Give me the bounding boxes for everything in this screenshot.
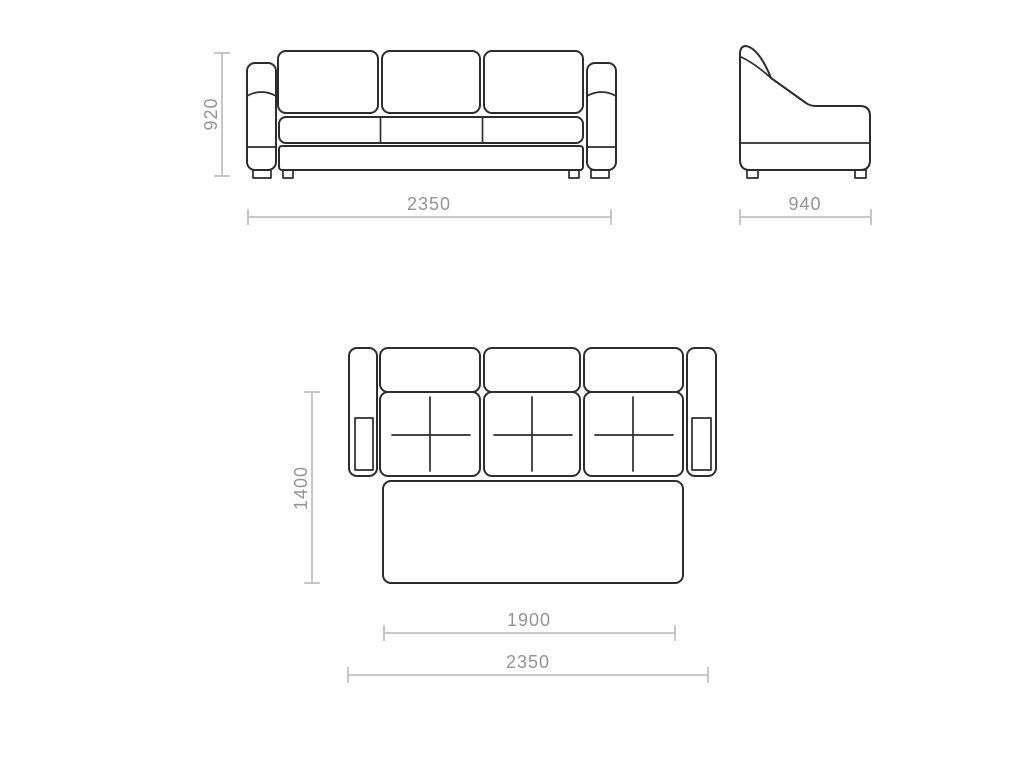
plan-depth-dimension: 1400	[291, 392, 320, 583]
front-base	[279, 146, 583, 170]
armrest-seam-arc	[247, 92, 276, 96]
plan-total-width-dimension: 2350	[348, 652, 708, 683]
plan-total-width-label: 2350	[506, 652, 550, 672]
front-foot-right	[569, 170, 579, 178]
front-seat-band	[279, 117, 583, 143]
plan-seat-cushion-1	[380, 392, 480, 476]
front-foot-left	[283, 170, 293, 178]
front-width-label: 2350	[407, 194, 451, 214]
armrest-body	[587, 63, 616, 170]
side-foot-left	[747, 170, 758, 178]
plan-back-cushion-1	[380, 348, 480, 392]
side-depth-dimension: 940	[740, 194, 871, 225]
plan-view: 1400	[291, 348, 716, 683]
side-foot-right	[855, 170, 866, 178]
plan-armrest-right	[687, 348, 716, 476]
armrest-foot	[591, 170, 609, 178]
side-view: 940	[740, 46, 871, 225]
plan-bed-section	[383, 481, 683, 583]
plan-seat-cushion-3	[584, 392, 683, 476]
front-back-cushion-1	[278, 51, 378, 113]
front-back-cushion-3	[484, 51, 583, 113]
seat-band-body	[279, 117, 583, 143]
armrest-foot	[253, 170, 271, 178]
front-back-cushion-2	[382, 51, 480, 113]
plan-back-cushion-2	[484, 348, 580, 392]
front-armrest-right	[587, 63, 616, 178]
front-armrest-left	[247, 63, 276, 178]
front-height-dimension: 920	[201, 53, 230, 176]
plan-back-cushion-3	[584, 348, 683, 392]
armrest-seam-arc	[587, 92, 616, 96]
front-height-label: 920	[201, 97, 221, 130]
side-outline	[740, 46, 870, 170]
front-width-dimension: 2350	[248, 194, 611, 225]
plan-bed-length-dimension: 1900	[384, 610, 675, 641]
armrest-panel	[692, 418, 711, 470]
plan-depth-label: 1400	[291, 466, 311, 510]
armrest-panel	[355, 418, 373, 470]
sofa-dimension-drawing: 920	[0, 0, 1024, 768]
front-view: 920	[201, 51, 616, 225]
armrest-body	[247, 63, 276, 170]
side-depth-label: 940	[788, 194, 821, 214]
plan-armrest-left	[349, 348, 377, 476]
plan-bed-length-label: 1900	[507, 610, 551, 630]
plan-seat-cushion-2	[484, 392, 580, 476]
